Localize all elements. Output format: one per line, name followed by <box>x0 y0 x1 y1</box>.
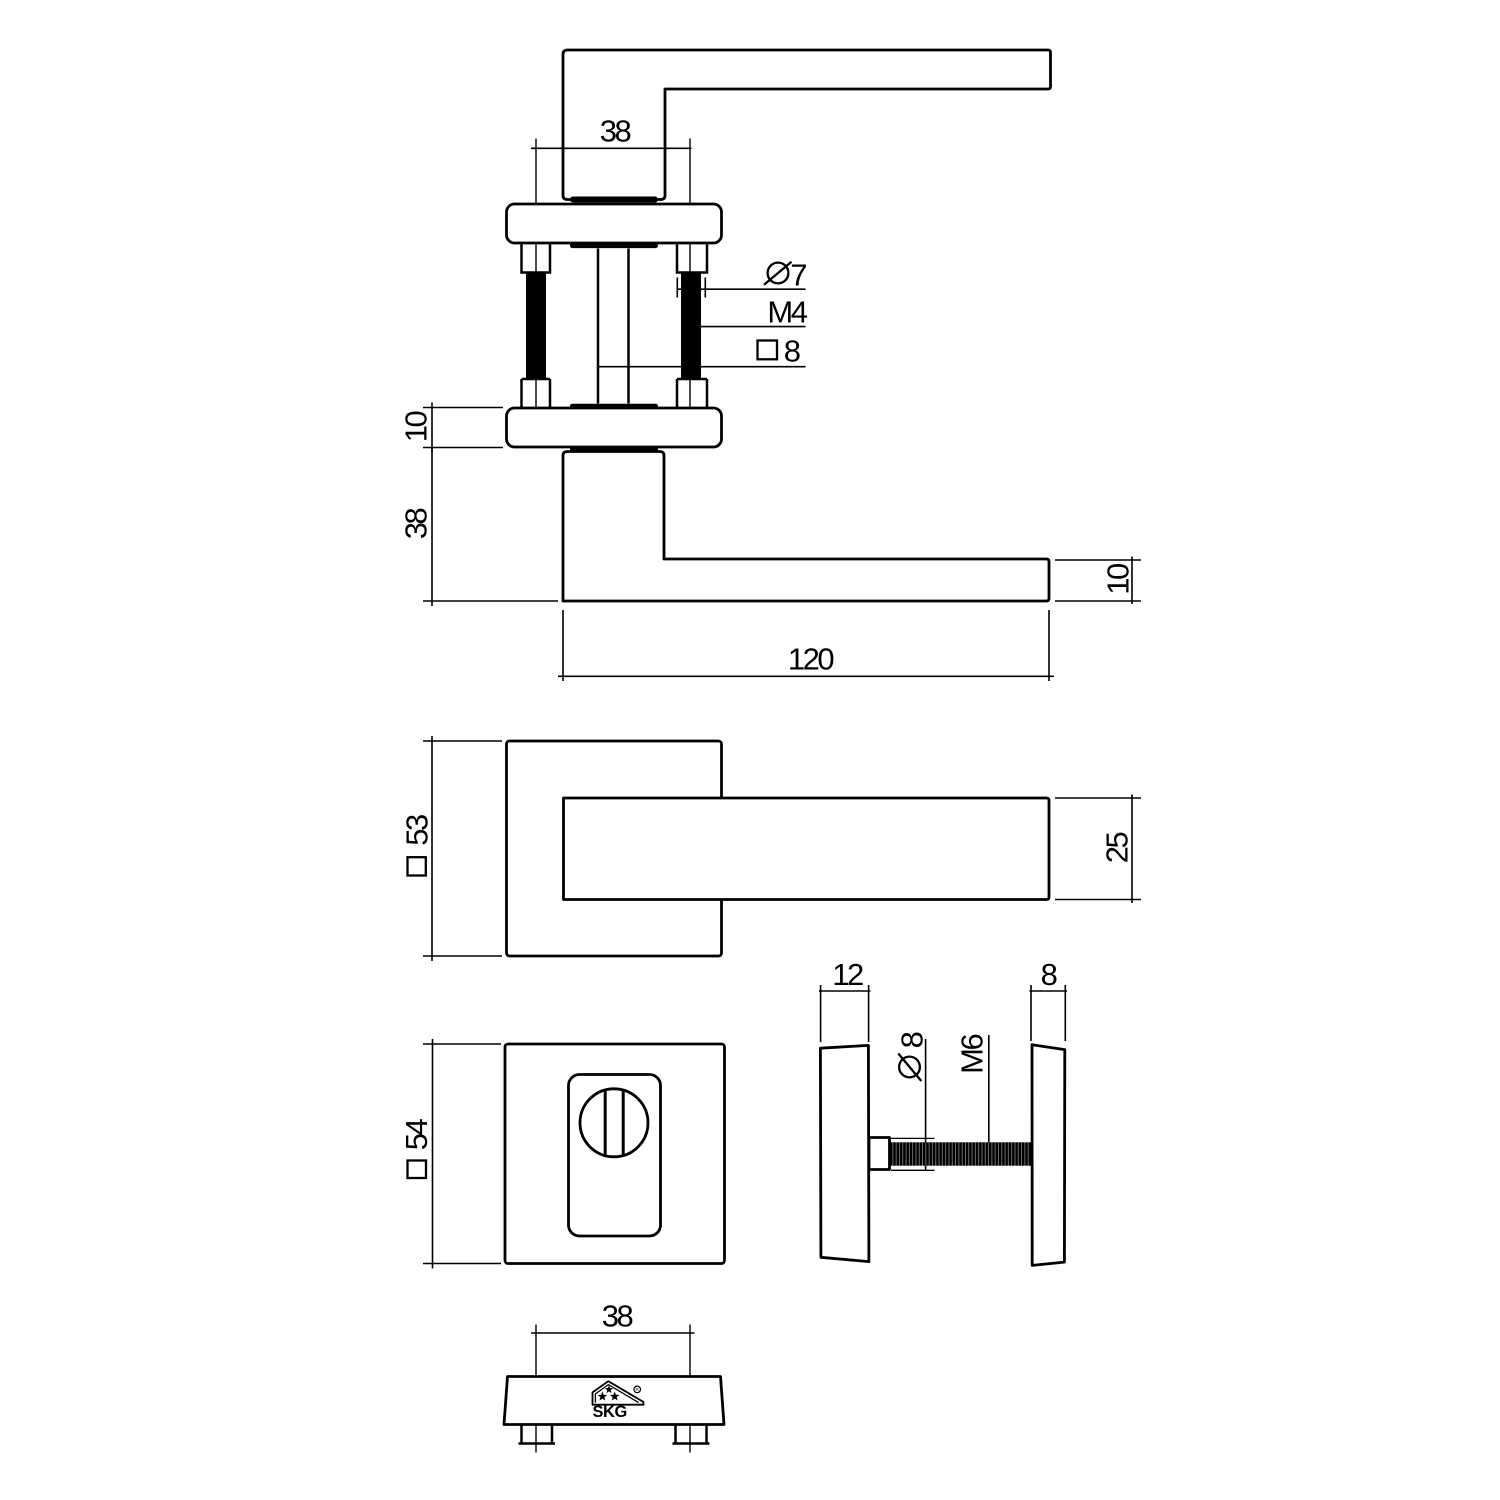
svg-text:7: 7 <box>790 258 806 293</box>
svg-text:10: 10 <box>1101 563 1136 595</box>
svg-text:SKG: SKG <box>593 1403 627 1421</box>
svg-text:10: 10 <box>399 411 434 443</box>
svg-text:8: 8 <box>1041 957 1057 992</box>
svg-text:54: 54 <box>399 1119 434 1151</box>
svg-text:38: 38 <box>602 1299 633 1334</box>
svg-text:8: 8 <box>895 1032 930 1048</box>
svg-text:53: 53 <box>400 815 435 846</box>
svg-text:12: 12 <box>832 957 863 992</box>
svg-text:38: 38 <box>399 509 434 540</box>
svg-text:38: 38 <box>600 114 631 149</box>
svg-text:M4: M4 <box>767 295 807 330</box>
svg-text:120: 120 <box>788 642 834 677</box>
svg-text:8: 8 <box>784 333 800 368</box>
svg-text:25: 25 <box>1100 833 1135 864</box>
svg-text:M6: M6 <box>955 1035 990 1074</box>
